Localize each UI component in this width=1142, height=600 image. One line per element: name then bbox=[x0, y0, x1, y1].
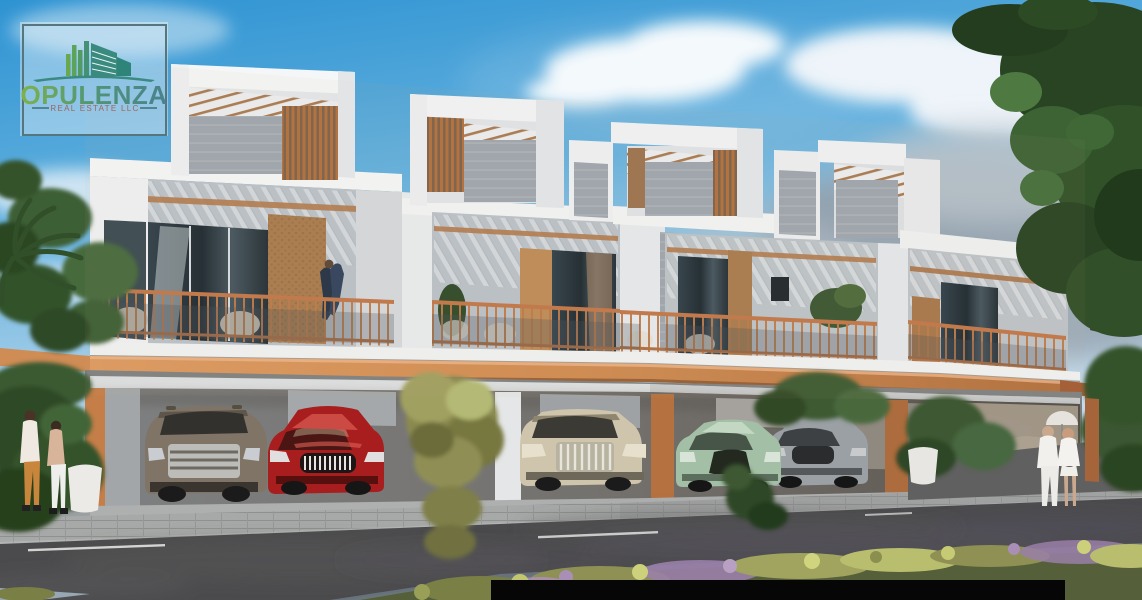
svg-text:REAL ESTATE LLC: REAL ESTATE LLC bbox=[50, 104, 139, 113]
